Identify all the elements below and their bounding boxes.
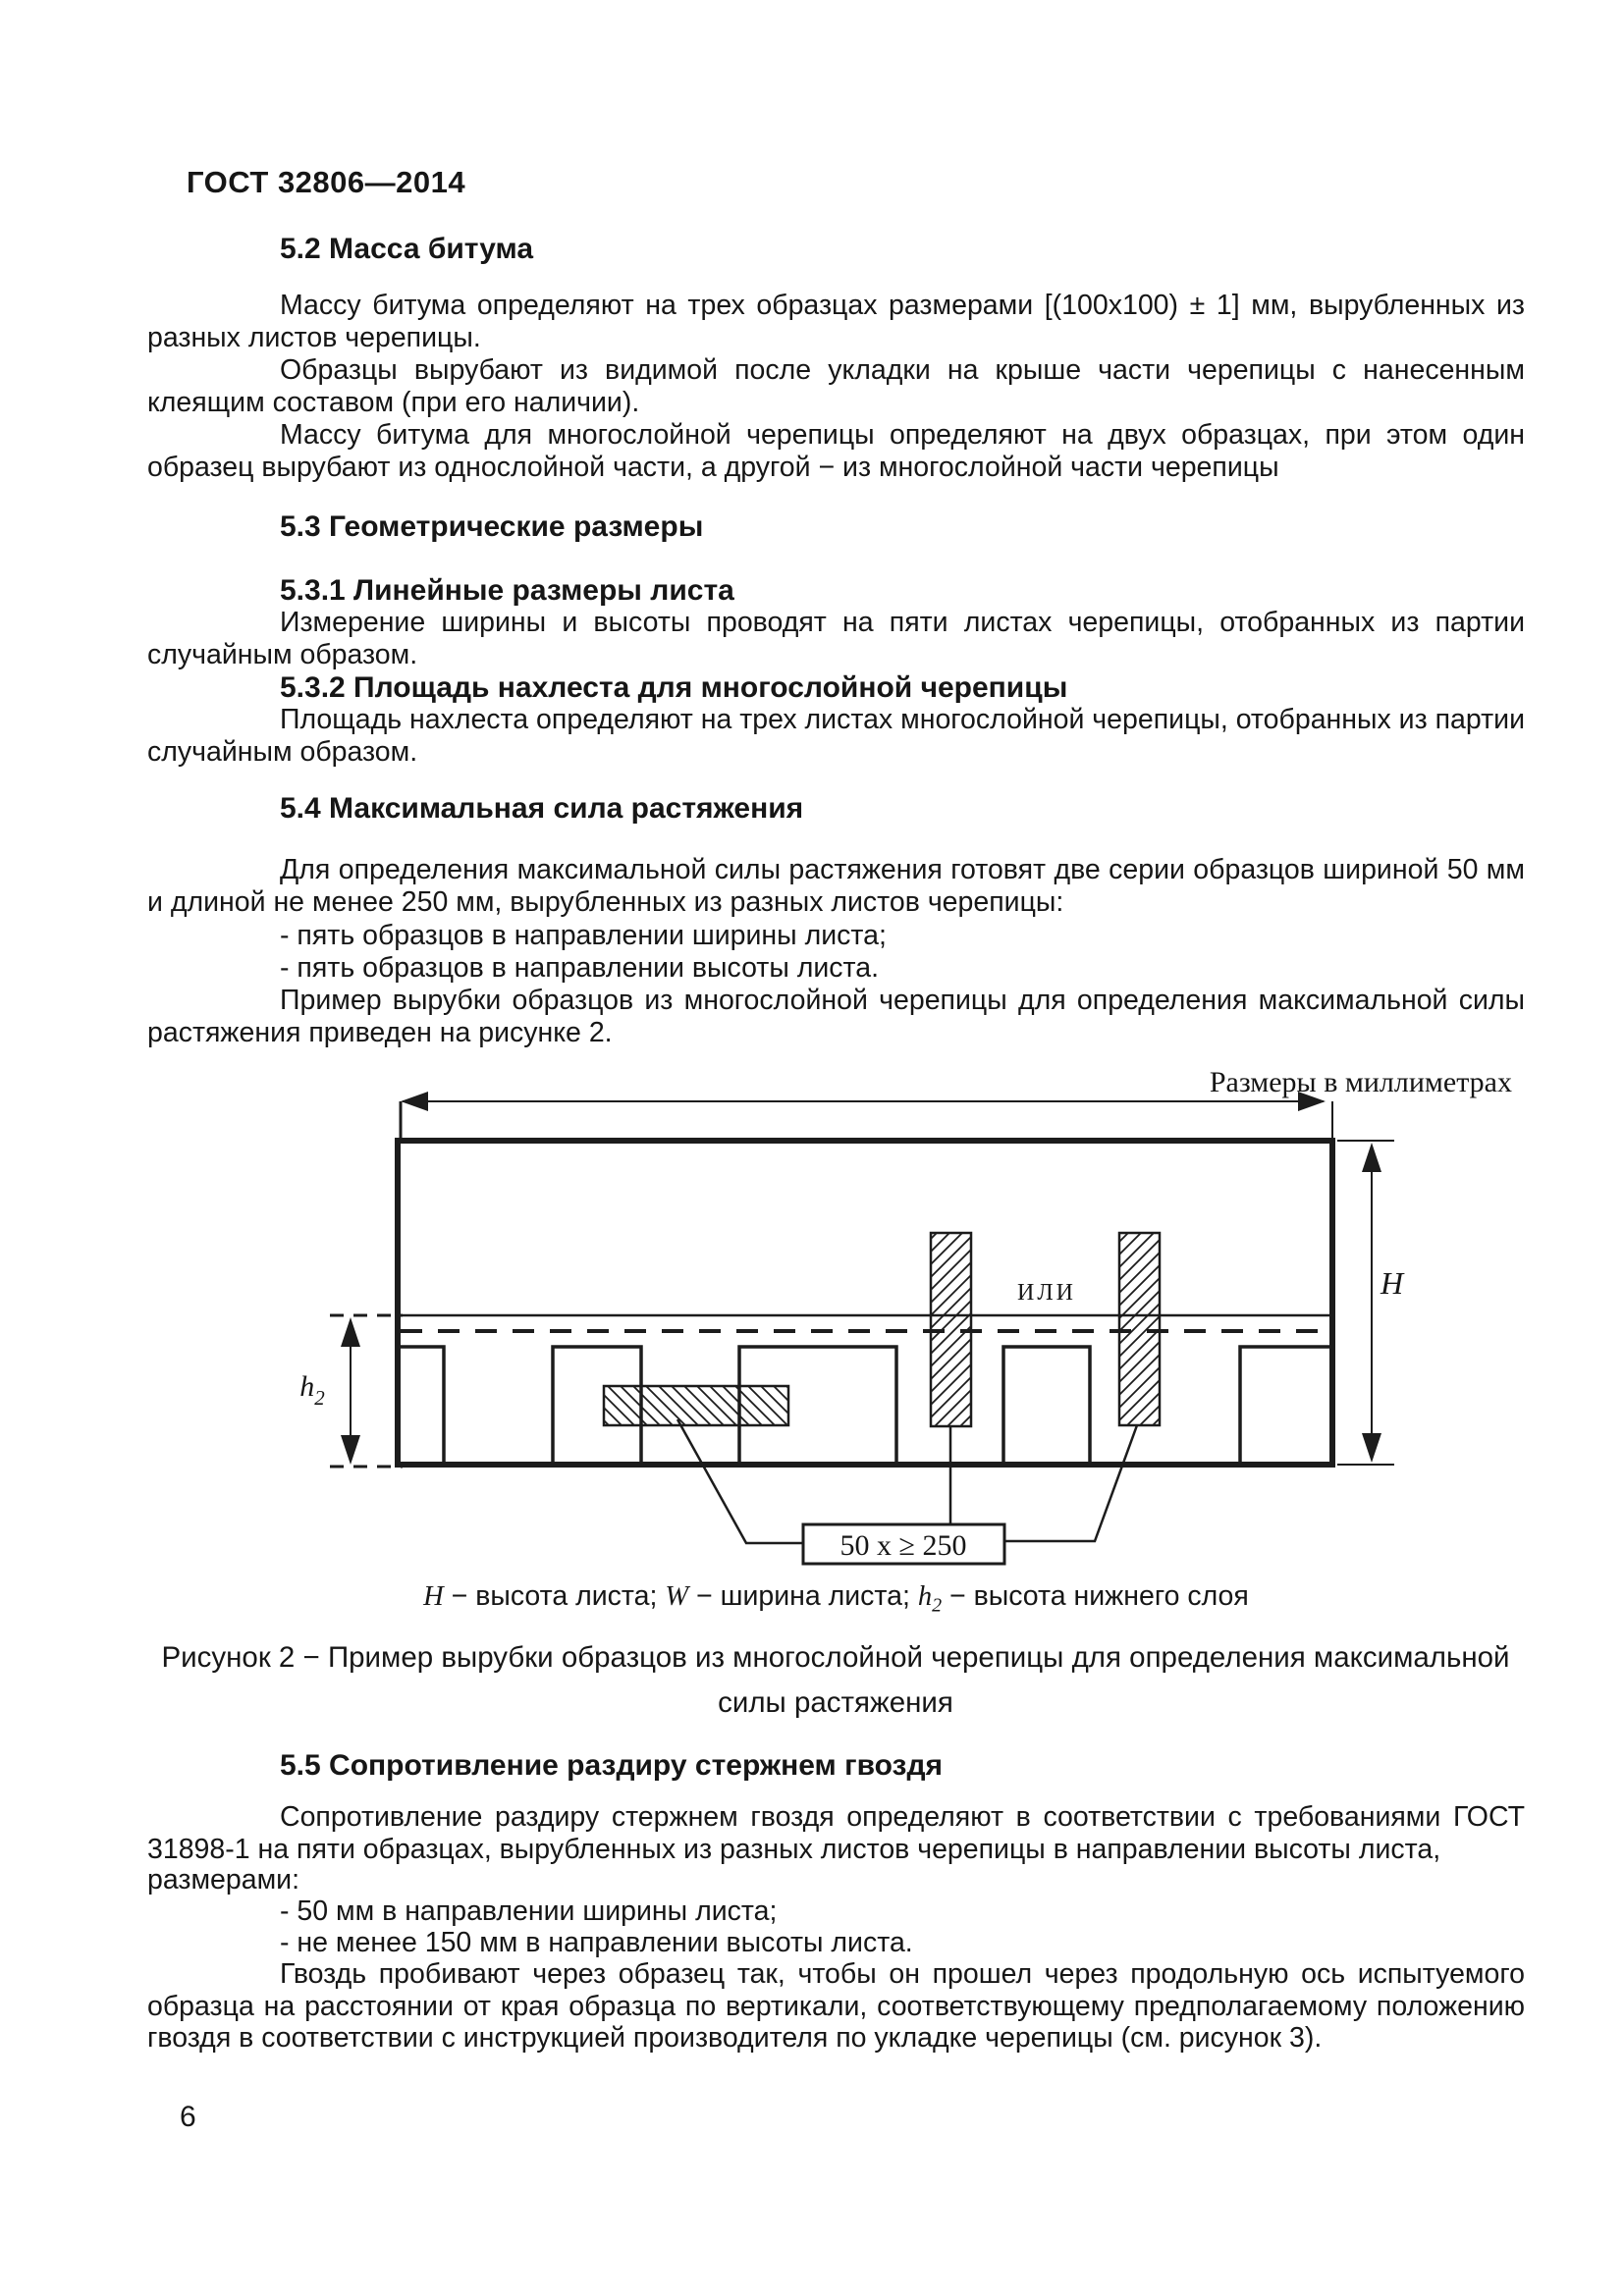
figure-caption-line2: силы растяжения [124, 1686, 1547, 1720]
paragraph-5-2-2: Образцы вырубают из видимой после укладк… [147, 354, 1525, 418]
legend-h2-subscript: 2 [932, 1595, 942, 1617]
figure-2-drawing: Размеры в миллиметрах [0, 1060, 1624, 1575]
paragraph-5-5-2: Гвоздь пробивают через образец так, чтоб… [147, 1958, 1525, 2055]
document-page: ГОСТ 32806—2014 5.2 Масса битума Массу б… [0, 0, 1624, 2296]
paragraph-5-4-1: Для определения максимальной силы растяж… [147, 854, 1525, 918]
legend-h2-text: − высота нижнего слоя [942, 1580, 1249, 1612]
legend-h2-symbol: h [918, 1581, 932, 1612]
units-label: Размеры в миллиметрах [1210, 1066, 1512, 1098]
list-item-width: - пять образцов в направлении ширины лис… [280, 920, 887, 952]
page-number: 6 [180, 2101, 196, 2134]
or-label: ИЛИ [1017, 1280, 1076, 1306]
paragraph-5-3-2: Площадь нахлеста определяют на трех лист… [147, 704, 1525, 768]
sample-height-direction-1 [931, 1233, 971, 1426]
paragraph-5-5-1: Сопротивление раздиру стержнем гвоздя оп… [147, 1801, 1525, 1865]
paragraph-5-5-1-tail: размерами: [147, 1864, 299, 1896]
section-title-5-2: 5.2 Масса битума [280, 233, 533, 266]
list-item-150mm: - не менее 150 мм в направлении высоты л… [280, 1927, 913, 1959]
height-dimension-arrow [1337, 1141, 1394, 1465]
tab-outlines [401, 1347, 1330, 1463]
figure-legend: H − высота листа; W − ширина листа; h2 −… [147, 1580, 1525, 1618]
list-item-height: - пять образцов в направлении высоты лис… [280, 952, 879, 985]
lower-layer-height-label: h2 [299, 1370, 325, 1410]
paragraph-5-3-1: Измерение ширины и высоты проводят на пя… [147, 607, 1525, 670]
legend-h-text: − высота листа; [444, 1580, 666, 1612]
legend-h-symbol: H [423, 1581, 444, 1612]
figure-2: Размеры в миллиметрах [0, 1060, 1624, 1580]
legend-w-symbol: W [665, 1581, 688, 1612]
section-title-5-3-1: 5.3.1 Линейные размеры листа [280, 574, 734, 608]
h2-subscript: 2 [314, 1386, 325, 1410]
height-dimension-label: H [1380, 1265, 1405, 1301]
sample-width-direction [604, 1386, 788, 1425]
paragraph-5-2-1: Массу битума определяют на трех образцах… [147, 290, 1525, 353]
section-title-5-3: 5.3 Геометрические размеры [280, 510, 703, 544]
section-title-5-3-2: 5.3.2 Площадь нахлеста для многослойной … [280, 671, 1067, 705]
paragraph-5-2-3: Массу битума для многослойной черепицы о… [147, 419, 1525, 483]
list-item-50mm: - 50 мм в направлении ширины листа; [280, 1896, 777, 1928]
section-title-5-5: 5.5 Сопротивление раздиру стержнем гвозд… [280, 1749, 943, 1783]
sheet-outline [398, 1141, 1332, 1465]
lower-layer-height-dimension [330, 1315, 403, 1467]
page-header: ГОСТ 32806—2014 [187, 165, 465, 200]
figure-caption-line1: Рисунок 2 − Пример вырубки образцов из м… [124, 1641, 1547, 1675]
paragraph-5-4-2: Пример вырубки образцов из многослойной … [147, 985, 1525, 1048]
sample-size-label: 50 x ≥ 250 [840, 1529, 967, 1562]
section-title-5-4: 5.4 Максимальная сила растяжения [280, 792, 803, 826]
h2-symbol: h [299, 1370, 314, 1403]
width-dimension-arrow [401, 1092, 1332, 1139]
legend-w-text: − ширина листа; [688, 1580, 918, 1612]
sample-height-direction-2 [1119, 1233, 1160, 1425]
